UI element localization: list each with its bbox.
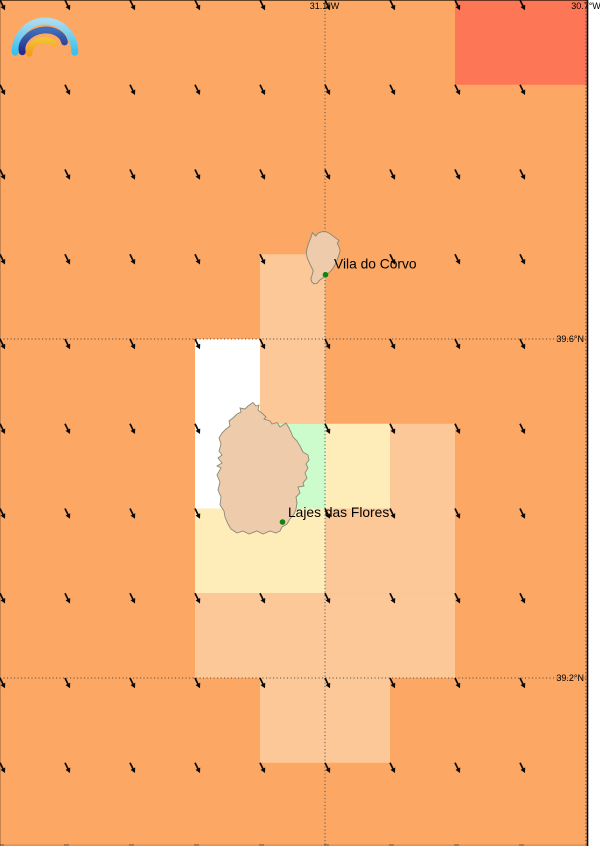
svg-text:39.2°N: 39.2°N: [556, 673, 584, 683]
svg-text:39.6°N: 39.6°N: [556, 334, 584, 344]
svg-text:31.1°W: 31.1°W: [310, 1, 340, 11]
svg-text:Vila do Corvo: Vila do Corvo: [334, 257, 417, 272]
svg-text:30.7°W: 30.7°W: [571, 1, 600, 11]
svg-text:Lajes das Flores: Lajes das Flores: [288, 505, 389, 520]
